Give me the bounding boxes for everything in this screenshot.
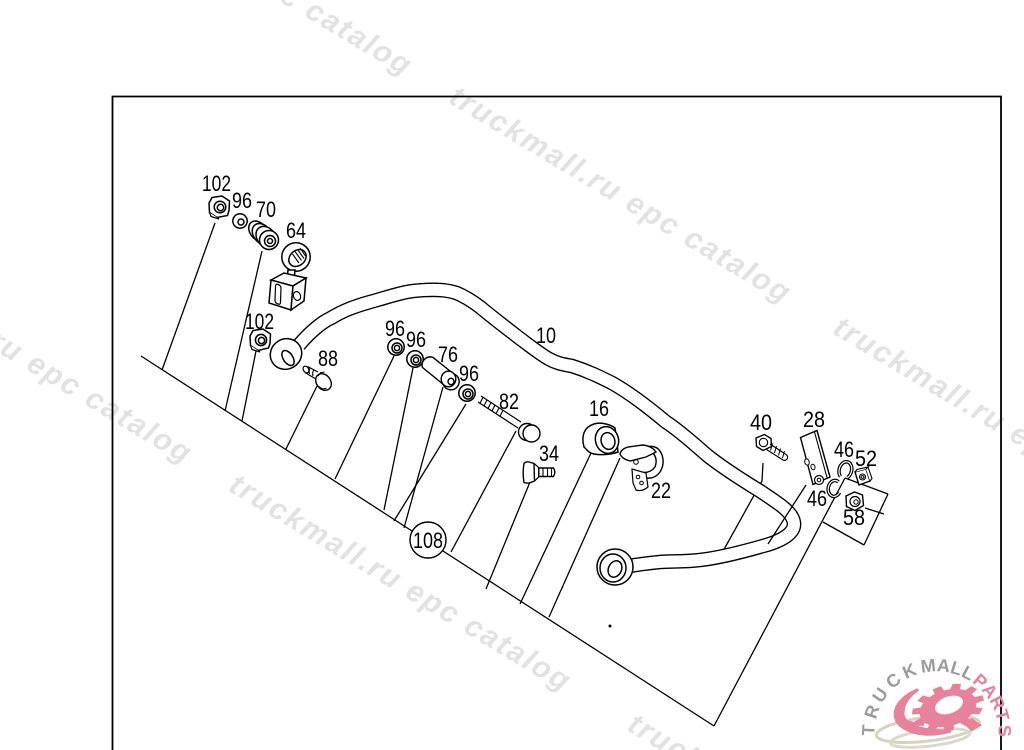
svg-text:52: 52 bbox=[855, 446, 877, 471]
svg-text:102: 102 bbox=[245, 309, 274, 334]
svg-text:70: 70 bbox=[256, 197, 276, 222]
svg-text:28: 28 bbox=[803, 407, 825, 432]
svg-text:46: 46 bbox=[834, 437, 854, 462]
svg-text:96: 96 bbox=[459, 361, 479, 386]
svg-text:S: S bbox=[994, 725, 1014, 738]
svg-text:82: 82 bbox=[499, 389, 519, 414]
svg-text:46: 46 bbox=[807, 486, 827, 511]
svg-text:16: 16 bbox=[589, 396, 609, 421]
svg-text:96: 96 bbox=[232, 188, 252, 213]
svg-text:T: T bbox=[858, 724, 879, 736]
svg-text:22: 22 bbox=[651, 478, 671, 503]
svg-text:96: 96 bbox=[385, 316, 405, 341]
svg-text:64: 64 bbox=[286, 218, 306, 243]
svg-text:M: M bbox=[920, 655, 937, 677]
svg-text:76: 76 bbox=[438, 342, 458, 367]
svg-text:34: 34 bbox=[539, 441, 559, 466]
svg-text:10: 10 bbox=[536, 323, 556, 348]
svg-text:96: 96 bbox=[406, 327, 426, 352]
svg-text:88: 88 bbox=[318, 346, 338, 371]
svg-text:58: 58 bbox=[843, 505, 865, 530]
svg-text:108: 108 bbox=[413, 528, 443, 553]
svg-text:40: 40 bbox=[750, 410, 772, 435]
svg-text:102: 102 bbox=[202, 171, 231, 196]
